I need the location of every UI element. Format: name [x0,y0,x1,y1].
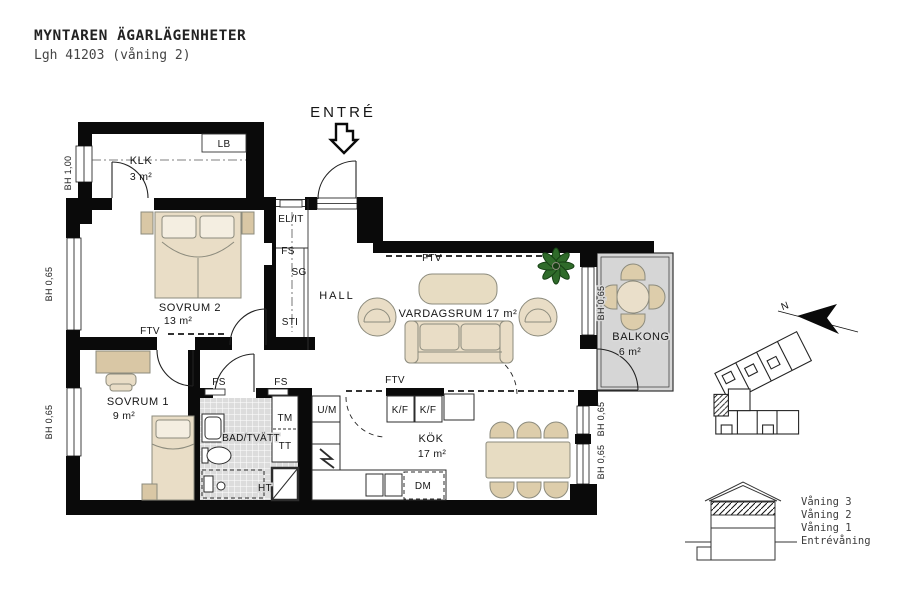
shaft [272,468,298,500]
window-height-sovrum2: BH 0,65 [44,267,54,302]
window-height-kok2: BH 0,65 [596,445,606,480]
fixture-label-um: U/M [317,405,336,416]
entry-arrow-icon [331,124,357,153]
washer-dryer-column [272,396,298,462]
room-area-klk: 3 m² [130,171,152,183]
window-height-klk: BH 1,00 [63,156,73,191]
fs-niche [264,243,272,265]
armchair-right [519,298,557,336]
north-arrow-icon [797,304,839,334]
desk [96,351,150,391]
floor-plan-canvas: N Våning 3 Våning 2 [0,0,900,600]
fixture-label-el-it: EL/IT [278,214,303,225]
site-highlight-unit [714,394,728,416]
room-label-vardagsrum: VARDAGSRUM 17 m² [399,308,518,320]
single-bed [142,416,194,500]
section-diagram [685,482,797,560]
room-label-kok: KÖK [418,433,443,445]
room-label-bad: BAD/TVÄTT [222,432,280,444]
room-area-sovrum2: 13 m² [164,315,193,327]
section-floor-labels: Våning 3 Våning 2 Våning 1 Entrévåning [801,495,871,547]
room-label-hall: HALL [319,290,355,302]
floor-label-entrevaning: Entrévåning [801,534,871,547]
room-label-sovrum1: SOVRUM 1 [107,396,169,408]
window-klk [76,146,92,182]
entry-label: ENTRÉ [310,104,376,121]
sovrum2-door [230,309,266,345]
room-area-balkong: 6 m² [619,346,641,358]
window-sovrum1 [67,388,81,456]
fixture-label-sti: STI [282,317,298,328]
window-kitchen-1 [577,406,589,434]
floor-label-vaning2: Våning 2 [801,508,852,521]
fixture-label-ftv-vardagsrum: FTV [422,253,442,264]
fixture-label-fs-bath1: FS [212,377,225,388]
window-balcony [582,267,594,335]
window-height-kok1: BH 0,65 [596,402,606,437]
sovrum1-door [157,350,193,386]
coffee-table [419,274,497,304]
fixture-label-fs-bath2: FS [274,377,287,388]
fixture-label-dm: DM [415,481,431,492]
el-it-vent [280,200,302,207]
entry-door [318,161,356,199]
fixture-label-kf1: K/F [392,405,408,416]
double-bed [141,212,254,298]
hob [312,444,340,471]
fixture-label-kf2: K/F [420,405,436,416]
fixture-label-ftv-kok: FTV [385,375,405,386]
room-label-balkong: BALKONG [612,331,669,343]
fixture-label-fs-shaft: FS [281,246,294,257]
fixture-label-ht: HT [258,483,272,494]
window-sovrum2 [67,238,81,330]
fixture-label-ftv-sovrum2: FTV [140,326,160,337]
toilet [202,447,231,464]
sofa [405,321,513,363]
window-height-sovrum1: BH 0,65 [44,405,54,440]
fixture-label-sg: SG [291,267,306,278]
entry-threshold [317,198,357,209]
window-kitchen-2 [577,444,589,484]
room-area-sovrum1: 9 m² [113,410,135,422]
fixture-label-tt: TT [279,441,292,452]
north-label: N [780,300,791,313]
site-plan [714,332,811,434]
room-area-kok: 17 m² [418,448,447,460]
plant [538,248,574,284]
washbasin [202,414,224,442]
dining-set [486,422,570,498]
room-label-sovrum2: SOVRUM 2 [159,302,221,314]
fixture-label-tm: TM [277,413,292,424]
floor-label-vaning1: Våning 1 [801,521,852,534]
armchair-left [358,298,396,336]
section-highlight-floor [711,502,775,515]
floor-label-vaning3: Våning 3 [801,495,852,508]
fixture-label-lb: LB [218,139,231,150]
window-height-balkong: BH 0,65 [596,286,606,321]
compass: N [778,300,858,334]
room-label-klk: KLK [130,155,153,167]
